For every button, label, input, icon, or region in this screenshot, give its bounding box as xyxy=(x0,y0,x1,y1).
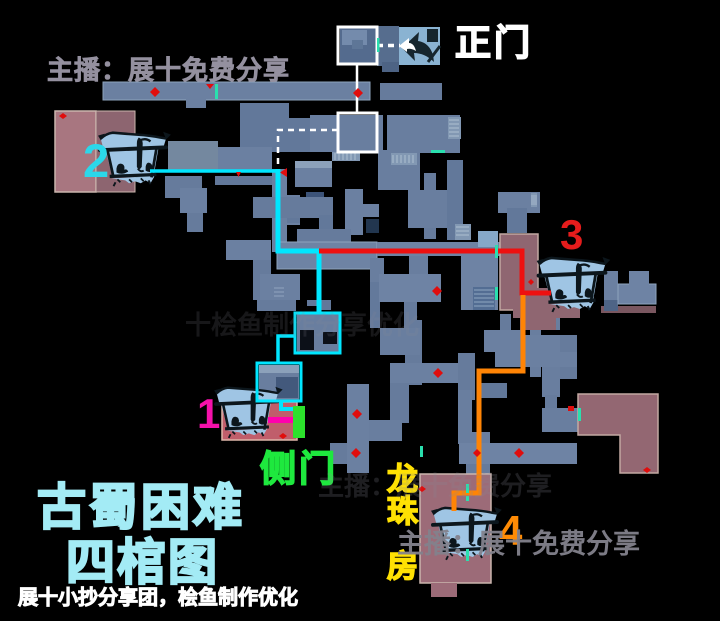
svg-text:展十小抄分享团，桧鱼制作优化: 展十小抄分享团，桧鱼制作优化 xyxy=(18,585,298,609)
svg-text:3: 3 xyxy=(560,211,583,258)
svg-text:主播：展十免费分享: 主播：展十免费分享 xyxy=(47,55,290,85)
svg-text:四棺图: 四棺图 xyxy=(66,536,219,590)
svg-text:十桧鱼制作分享优化: 十桧鱼制作分享优化 xyxy=(185,310,419,340)
svg-text:主播：展十免费分享: 主播：展十免费分享 xyxy=(397,528,640,559)
svg-text:古蜀困难: 古蜀困难 xyxy=(37,481,245,535)
svg-text:正门: 正门 xyxy=(455,22,533,63)
svg-text:主播：展十免费分享: 主播：展十免费分享 xyxy=(318,471,552,501)
svg-text:2: 2 xyxy=(83,134,109,187)
svg-text:1: 1 xyxy=(197,390,220,437)
